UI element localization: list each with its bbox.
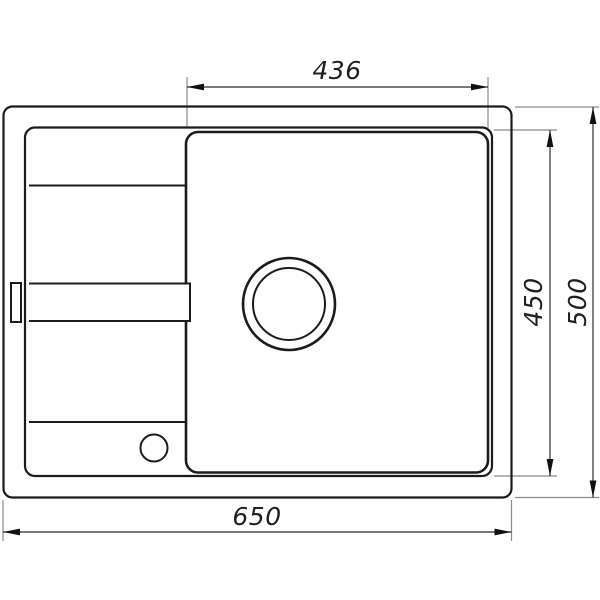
sink-outlines (4, 107, 512, 498)
arrow-436-right-icon (471, 84, 488, 91)
divider-ledge (29, 284, 190, 322)
arrow-450-down-icon (547, 459, 554, 476)
arrow-650-left-icon (3, 529, 20, 536)
arrow-500-down-icon (590, 481, 597, 498)
arrow-500-up-icon (590, 107, 597, 124)
dim-label-650: 650 (232, 502, 281, 531)
arrow-436-left-icon (187, 84, 204, 91)
dim-label-500: 500 (563, 277, 592, 326)
arrow-450-up-icon (547, 130, 554, 147)
dim-label-450: 450 (519, 277, 548, 326)
drain-outer-circle (243, 258, 335, 350)
sink-dimension-diagram: 436 450 500 650 (0, 0, 600, 600)
basin-bowl-outline (186, 132, 488, 473)
technical-drawing: 436 450 500 650 (0, 0, 600, 600)
dim-label-436: 436 (312, 56, 361, 85)
drain-inner-circle (253, 268, 325, 340)
overflow-notch (11, 283, 21, 322)
tap-hole-circle (141, 435, 168, 462)
arrow-650-right-icon (495, 529, 512, 536)
